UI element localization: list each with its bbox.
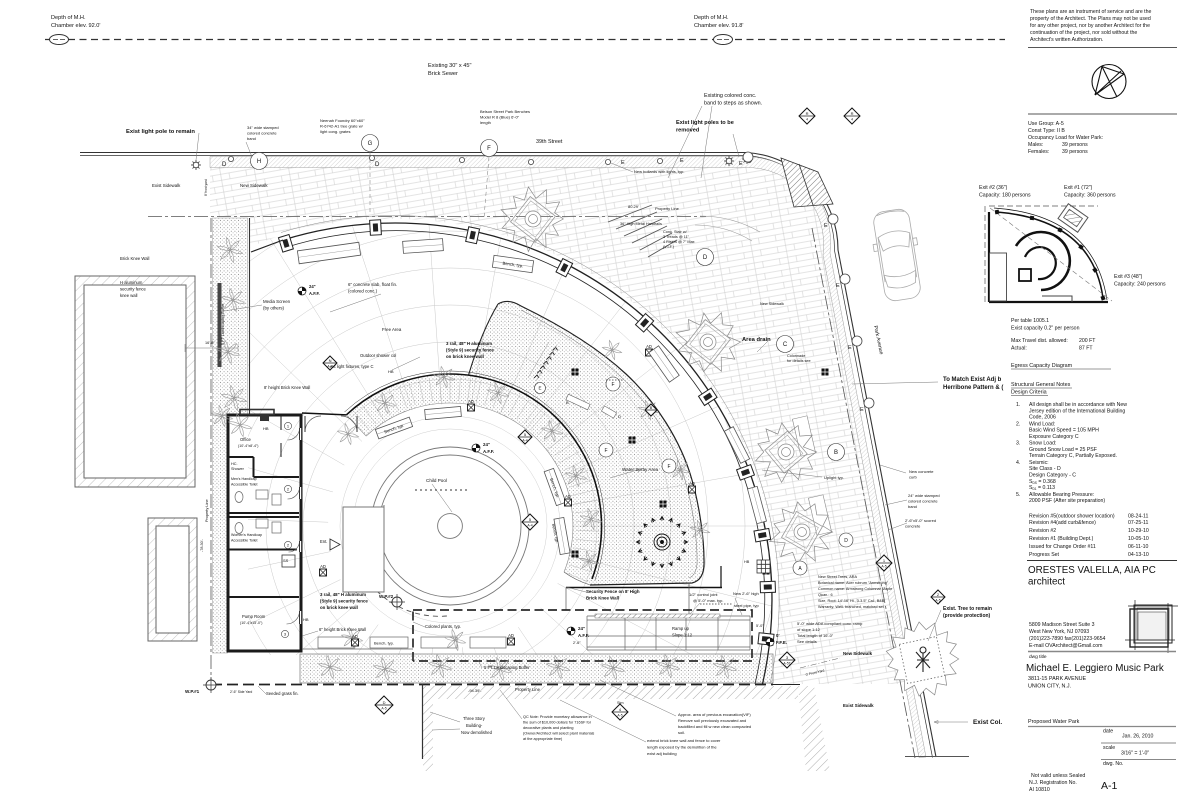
svg-text:dwg title: dwg title	[1029, 654, 1047, 660]
svg-text:2000 PSF (After site preparati: 2000 PSF (After site preparation)	[1029, 498, 1105, 504]
svg-text:(Style 9) security fence: (Style 9) security fence	[320, 599, 368, 604]
svg-text:E: E	[739, 161, 743, 167]
svg-text:SS: SS	[283, 558, 289, 563]
svg-text:E: E	[848, 345, 852, 351]
svg-text:A-4: A-4	[522, 439, 527, 443]
svg-text:QC Note: Provide monetary allo: QC Note: Provide monetary allowance in	[523, 715, 592, 719]
svg-text:Bench, typ.: Bench, typ.	[374, 641, 394, 646]
svg-text:Occupancy Load for Water Park:: Occupancy Load for Water Park:	[1028, 135, 1103, 141]
svg-text:24": 24"	[309, 284, 316, 289]
svg-text:To Match Exist Adj b: To Match Exist Adj b	[943, 377, 1002, 383]
svg-text:Females:: Females:	[1028, 149, 1049, 155]
svg-text:All design shall be in accorda: All design shall be in accordance with N…	[1029, 402, 1127, 408]
svg-text:Per table 1005.1: Per table 1005.1	[1011, 318, 1049, 324]
svg-text:Allowable Bearing Pressure:: Allowable Bearing Pressure:	[1029, 492, 1094, 498]
svg-text:2'-6": 2'-6"	[573, 641, 581, 645]
svg-text:These plans are an instrument: These plans are an instrument of service…	[1030, 9, 1152, 15]
svg-text:steel pipe, typ: steel pipe, typ	[734, 603, 759, 608]
svg-text:Exit #2 (36"): Exit #2 (36")	[979, 185, 1008, 191]
svg-text:04-13-10: 04-13-10	[1128, 552, 1149, 558]
svg-text:Design Category - C: Design Category - C	[1029, 473, 1076, 479]
svg-text:-78.30'-: -78.30'-	[200, 539, 204, 552]
svg-text:(Style 9) security fence: (Style 9) security fence	[446, 348, 494, 353]
svg-text:Exist Col.: Exist Col.	[973, 719, 1002, 726]
svg-text:length: length	[480, 120, 491, 125]
svg-text:Brick Sewer: Brick Sewer	[428, 71, 458, 77]
svg-text:removed: removed	[676, 128, 700, 134]
svg-text:36" High Metal Handrails: 36" High Metal Handrails	[620, 222, 662, 226]
svg-text:6" height Brick Knee Wall: 6" height Brick Knee Wall	[319, 627, 366, 632]
svg-text:Accessible Toilet: Accessible Toilet	[231, 483, 258, 487]
svg-text:soil.: soil.	[678, 730, 685, 735]
svg-text:Exist light pole to remain: Exist light pole to remain	[126, 129, 195, 135]
svg-text:Males:: Males:	[1028, 142, 1043, 148]
svg-text:HB: HB	[388, 369, 394, 374]
svg-text:8' height Brick Knee Wall: 8' height Brick Knee Wall	[264, 385, 310, 390]
svg-text:Warranty: Well- branched, matc: Warranty: Well- branched, matched set	[818, 605, 885, 609]
svg-text:5'-0": 5'-0"	[756, 624, 764, 628]
svg-text:5'-0" wide ADA compliant conc.: 5'-0" wide ADA compliant conc. ramp	[797, 621, 863, 626]
svg-text:F: F	[667, 464, 670, 470]
svg-text:(201)223-7890 fax(201)223-9654: (201)223-7890 fax(201)223-9654	[1029, 636, 1106, 642]
svg-text:curb: curb	[909, 475, 918, 480]
svg-text:exist adj building: exist adj building	[647, 751, 677, 756]
svg-text:R: R	[806, 111, 809, 116]
svg-text:87 FT: 87 FT	[1079, 346, 1093, 352]
svg-text:Use Group: A-5: Use Group: A-5	[1028, 121, 1064, 127]
svg-text:Property Line: Property Line	[515, 687, 541, 692]
svg-text:B: B	[650, 405, 653, 410]
svg-text:date: date	[1103, 729, 1113, 735]
svg-text:Security Fence on 8' High: Security Fence on 8' High	[586, 589, 640, 594]
svg-text:A-4: A-4	[527, 524, 532, 528]
svg-text:Free Area: Free Area	[382, 327, 402, 332]
svg-text:Jersey edition of the Internat: Jersey edition of the International Buil…	[1029, 408, 1125, 414]
svg-text:A-5: A-5	[381, 707, 386, 711]
svg-text:scale: scale	[1103, 745, 1115, 751]
svg-text:Egress Capacity Diagram: Egress Capacity Diagram	[1011, 363, 1073, 369]
svg-text:Exist. Tree to remain: Exist. Tree to remain	[943, 606, 992, 612]
svg-text:F: F	[487, 146, 491, 152]
svg-text:Wind Load:: Wind Load:	[1029, 421, 1055, 427]
svg-text:24" wide stamped: 24" wide stamped	[908, 493, 940, 498]
svg-text:Design Criteria: Design Criteria	[1011, 390, 1047, 396]
svg-text:(V.I.F.): (V.I.F.)	[663, 245, 675, 249]
svg-text:24": 24"	[578, 626, 585, 631]
svg-text:HB: HB	[303, 617, 309, 622]
svg-text:1.: 1.	[1016, 402, 1020, 408]
svg-text:H: H	[257, 159, 261, 165]
svg-text:ext light fixtures, type C: ext light fixtures, type C	[330, 364, 374, 369]
svg-text:Size, Root: 14'-16' Ht., 3-3.5: Size, Root: 14'-16' Ht., 3-3.5" Cal., B&…	[818, 599, 885, 603]
svg-text:10-05-10: 10-05-10	[1128, 536, 1149, 542]
svg-text:New bollards with lights, typ.: New bollards with lights, typ.	[634, 169, 684, 174]
svg-text:C: C	[783, 342, 788, 348]
svg-text:Three Story: Three Story	[463, 716, 486, 721]
svg-text:property of the Architect. The: property of the Architect. The Plans may…	[1030, 16, 1151, 22]
svg-text:3 rail, 48" H aluminum: 3 rail, 48" H aluminum	[320, 592, 366, 597]
svg-text:Herribone Pattern & (: Herribone Pattern & (	[943, 385, 1003, 391]
svg-text:Exist Sidewalk: Exist Sidewalk	[152, 183, 181, 188]
svg-text:F: F	[611, 382, 614, 388]
svg-text:AD: AD	[508, 633, 514, 638]
svg-text:D: D	[222, 162, 227, 168]
svg-text:continuation of the project, n: continuation of the project, nor sold wi…	[1030, 30, 1137, 36]
svg-text:34" wide stamped: 34" wide stamped	[247, 125, 279, 130]
svg-text:Exposure Category C: Exposure Category C	[1029, 434, 1079, 440]
svg-text:E: E	[824, 223, 828, 229]
svg-text:AD: AD	[320, 564, 326, 569]
svg-text:Ramp up: Ramp up	[672, 626, 690, 631]
svg-text:Capacity: 180 persons: Capacity: 180 persons	[979, 193, 1031, 199]
svg-text:HC.: HC.	[231, 462, 238, 466]
svg-text:E: E	[621, 160, 625, 166]
svg-text:knee wall: knee wall	[120, 293, 138, 298]
svg-text:Slope 1:12: Slope 1:12	[672, 633, 693, 638]
svg-text:39 persons: 39 persons	[1062, 142, 1088, 148]
svg-text:R-6742-A1 tree grate w/: R-6742-A1 tree grate w/	[320, 124, 364, 129]
svg-text:2'-6" Side Yard: 2'-6" Side Yard	[230, 690, 252, 694]
svg-text:N: N	[329, 358, 332, 363]
svg-text:Snow Load:: Snow Load:	[1029, 441, 1056, 447]
svg-text:(Owner/Architect will select: (Owner/Architect will select plant mater…	[523, 732, 594, 736]
svg-text:band: band	[908, 504, 917, 509]
svg-text:Exist capacity 0.2" per person: Exist capacity 0.2" per person	[1011, 326, 1080, 332]
svg-text:Depth of M.H.: Depth of M.H.	[51, 15, 86, 21]
svg-text:Depth of M.H.: Depth of M.H.	[694, 15, 729, 21]
svg-text:Neenah Foundry 60"x60": Neenah Foundry 60"x60"	[320, 118, 365, 123]
svg-text:A-5: A-5	[935, 599, 940, 603]
svg-text:AD: AD	[646, 344, 652, 349]
svg-text:Common name: Armstrong Columna: Common name: Armstrong Columnar Maple	[818, 587, 892, 591]
svg-text:3 rail, 48" H aluminum: 3 rail, 48" H aluminum	[446, 341, 492, 346]
svg-text:A.F.F.: A.F.F.	[483, 449, 494, 454]
svg-text:3/16" = 1'-0": 3/16" = 1'-0"	[1121, 751, 1149, 757]
svg-text:band: band	[247, 136, 256, 141]
svg-text:Structural General Notes: Structural General Notes	[1011, 382, 1071, 388]
svg-text:4: 4	[851, 118, 853, 122]
svg-text:Brick Knee Wall: Brick Knee Wall	[586, 596, 619, 601]
svg-text:2'-6"x5'-0" scored: 2'-6"x5'-0" scored	[905, 518, 936, 523]
svg-text:Conc. Stair w/: Conc. Stair w/	[663, 230, 688, 234]
svg-text:3811-15 PARK AVENUE: 3811-15 PARK AVENUE	[1028, 676, 1087, 682]
svg-text:Approx. area of previous excav: Approx. area of previous excavation(VIF)	[678, 712, 751, 717]
svg-text:W.P.#1: W.P.#1	[185, 689, 200, 694]
svg-text:Remove soil previously excavat: Remove soil previously excavated and	[678, 718, 746, 723]
svg-text:-94.39'-: -94.39'-	[468, 688, 482, 693]
svg-text:(colored conc.): (colored conc.)	[348, 289, 378, 294]
svg-text:A.F.F.: A.F.F.	[578, 633, 589, 638]
svg-text:(10'-4"x8'-4"): (10'-4"x8'-4")	[238, 444, 259, 448]
svg-text:Seismic:: Seismic:	[1029, 460, 1049, 466]
svg-text:Existing colored conc.: Existing colored conc.	[704, 93, 756, 99]
svg-text:Media Screen: Media Screen	[263, 299, 291, 304]
svg-text:Child Pool: Child Pool	[426, 478, 447, 483]
svg-text:New 2'-6" high: New 2'-6" high	[733, 591, 759, 596]
svg-text:Men's Handicap: Men's Handicap	[231, 477, 257, 481]
svg-text:(10'-4"x15'-0"): (10'-4"x15'-0")	[240, 621, 263, 625]
svg-text:2.: 2.	[1016, 421, 1020, 427]
svg-text:A-5T: A-5T	[783, 662, 790, 666]
svg-text:Quan.: 6: Quan.: 6	[818, 593, 833, 597]
svg-text:Revision #2: Revision #2	[1029, 528, 1056, 534]
svg-text:Basic Wind Speed = 105 MPH: Basic Wind Speed = 105 MPH	[1029, 428, 1099, 434]
svg-text:D: D	[375, 162, 380, 168]
svg-text:Property Line: Property Line	[655, 206, 680, 211]
svg-text:Terrain Category C, Partially: Terrain Category C, Partially Exposed.	[1029, 453, 1117, 459]
svg-text:Outdoor shower col: Outdoor shower col	[360, 353, 396, 358]
svg-text:Uplight typ.: Uplight typ.	[824, 475, 844, 480]
svg-text:E-mail OVArchitect@Gmail.com: E-mail OVArchitect@Gmail.com	[1029, 643, 1102, 649]
svg-text:Michael E. Leggiero Music Park: Michael E. Leggiero Music Park	[1026, 663, 1164, 674]
svg-text:4: 4	[806, 118, 808, 122]
svg-text:24": 24"	[483, 442, 490, 447]
svg-text:the sum of $10,000 dollars for: the sum of $10,000 dollars for 716SF for	[523, 721, 592, 725]
svg-text:Exit #1 (72"): Exit #1 (72")	[1064, 185, 1093, 191]
svg-text:Capacity: 240 persons: Capacity: 240 persons	[1114, 282, 1166, 288]
svg-text:(by others): (by others)	[263, 306, 285, 311]
svg-text:Capacity: 360 persons: Capacity: 360 persons	[1064, 193, 1116, 199]
svg-text:Exist light poles to be: Exist light poles to be	[676, 120, 734, 126]
svg-text:W.P.#2: W.P.#2	[379, 594, 394, 599]
svg-text:E: E	[680, 158, 684, 164]
svg-text:Now demolished: Now demolished	[461, 730, 493, 735]
svg-text:E: E	[538, 386, 541, 391]
svg-text:39 persons: 39 persons	[1062, 149, 1088, 155]
svg-text:decorative plants and planting: decorative plants and planting	[523, 726, 573, 730]
svg-text:Colonnade: Colonnade	[787, 354, 805, 358]
svg-text:on brick knee wall: on brick knee wall	[320, 605, 358, 610]
svg-text:Office: Office	[240, 437, 252, 442]
svg-text:Model R 8 (Blue) 6'-0": Model R 8 (Blue) 6'-0"	[480, 115, 520, 120]
svg-text:Chamber elev. 91.8': Chamber elev. 91.8'	[694, 23, 743, 29]
svg-text:for any other project, nor by: for any other project, nor by another Ar…	[1030, 23, 1150, 29]
svg-text:extend brick knee wall and fen: extend brick knee wall and fence to cove…	[647, 738, 721, 743]
svg-text:Water Spray Area: Water Spray Area	[622, 467, 659, 472]
svg-text:ORESTES VALELLA, AIA PC: ORESTES VALELLA, AIA PC	[1028, 565, 1156, 576]
svg-text:H aluminum: H aluminum	[120, 280, 143, 285]
svg-text:39th Street: 39th Street	[536, 139, 563, 145]
svg-text:UNION CITY, N.J.: UNION CITY, N.J.	[1028, 684, 1071, 690]
svg-text:Women's Handicap: Women's Handicap	[231, 533, 262, 537]
svg-text:10-29-10: 10-29-10	[1128, 528, 1149, 534]
svg-text:at the appropriate time): at the appropriate time)	[523, 737, 563, 741]
svg-text:Seeded grass fin.: Seeded grass fin.	[266, 691, 299, 696]
svg-text:0': 0'	[776, 633, 780, 638]
svg-text:Progress Set: Progress Set	[1029, 552, 1060, 558]
svg-text:Shower: Shower	[231, 467, 245, 471]
svg-text:D: D	[703, 255, 708, 261]
svg-text:5.: 5.	[1016, 492, 1020, 498]
svg-text:New Sidewalk: New Sidewalk	[843, 651, 873, 656]
svg-text:08-24-11: 08-24-11	[1128, 514, 1148, 520]
svg-text:D: D	[844, 538, 848, 544]
svg-text:Not valid unless Sealed: Not valid unless Sealed	[1031, 773, 1085, 779]
svg-text:D: D	[618, 414, 621, 419]
svg-text:E: E	[836, 283, 840, 289]
svg-text:A-1: A-1	[1101, 780, 1118, 792]
svg-text:80.29': 80.29'	[628, 204, 639, 209]
svg-text:band to steps as shown.: band to steps as shown.	[704, 101, 762, 107]
svg-text:HB: HB	[263, 426, 269, 431]
svg-text:Belson Street Park Benches: Belson Street Park Benches	[480, 109, 530, 114]
svg-text:@ 5'-0" max. typ.: @ 5'-0" max. typ.	[693, 598, 723, 603]
svg-text:Exist Sidewalk: Exist Sidewalk	[843, 703, 874, 708]
svg-text:Jan. 26, 2010: Jan. 26, 2010	[1122, 734, 1154, 740]
svg-text:of slope 1:12: of slope 1:12	[797, 627, 821, 632]
svg-text:See details: See details	[797, 639, 817, 644]
svg-text:3.: 3.	[1016, 441, 1020, 447]
svg-text:Proposed Water Park: Proposed Water Park	[1028, 719, 1080, 725]
svg-text:(provide protection): (provide protection)	[943, 613, 991, 619]
svg-text:R: R	[851, 111, 854, 116]
svg-text:B: B	[566, 400, 569, 405]
svg-text:Revision #5(outdoor shower loc: Revision #5(outdoor shower location)	[1029, 514, 1115, 520]
svg-text:Actual:: Actual:	[1011, 346, 1027, 352]
svg-text:Exit #3 (48"): Exit #3 (48")	[1114, 274, 1143, 280]
svg-text:colored concrete: colored concrete	[908, 499, 938, 504]
svg-text:G: G	[368, 141, 373, 147]
svg-text:New Street Trees, ARA: New Street Trees, ARA	[818, 575, 858, 579]
svg-text:colored concrete: colored concrete	[247, 131, 277, 136]
svg-text:B: B	[834, 450, 838, 456]
svg-text:light cong. grates: light cong. grates	[320, 129, 350, 134]
svg-text:New Sidewalk: New Sidewalk	[240, 183, 268, 188]
svg-text:6" concrete slab, float fin.: 6" concrete slab, float fin.	[348, 282, 397, 287]
svg-text:Area drain: Area drain	[742, 337, 771, 343]
svg-text:Botanical name: Acer rubrum "A: Botanical name: Acer rubrum "Armstrong"	[818, 581, 889, 585]
svg-text:A-5: A-5	[881, 565, 886, 569]
svg-text:New Sidewalk: New Sidewalk	[760, 302, 784, 306]
svg-text:backfilled and fill w new clea: backfilled and fill w new clean compacte…	[678, 724, 751, 729]
svg-text:Existing 30" x 45": Existing 30" x 45"	[428, 63, 471, 69]
svg-text:Architect's written Authorizat: Architect's written Authorization.	[1030, 37, 1103, 43]
svg-text:5 FT Landscaping Buffer: 5 FT Landscaping Buffer	[484, 665, 530, 670]
svg-text:Property Line: Property Line	[205, 499, 209, 522]
svg-text:Sim: Sim	[617, 701, 624, 705]
svg-text:for details see: for details see	[787, 359, 811, 363]
svg-text:HB: HB	[744, 560, 750, 564]
svg-text:A-5: A-5	[617, 714, 622, 718]
svg-text:Max Travel dist. allowed:: Max Travel dist. allowed:	[1011, 338, 1068, 344]
svg-text:architect: architect	[1028, 577, 1065, 588]
svg-text:AD: AD	[565, 494, 571, 499]
svg-text:Issued for Change Order #11: Issued for Change Order #11	[1029, 544, 1096, 550]
svg-text:1/2" control joint: 1/2" control joint	[689, 592, 718, 597]
svg-text:4 Risers @ 7" Max: 4 Risers @ 7" Max	[663, 240, 695, 244]
svg-text:F.F.E.: F.F.E.	[776, 640, 787, 645]
svg-text:Site Class - D: Site Class - D	[1029, 466, 1061, 472]
svg-text:F: F	[604, 448, 607, 454]
svg-text:Revision #4(add curb&fence): Revision #4(add curb&fence)	[1029, 520, 1096, 526]
svg-text:Ground Snow Load = 25 PSF: Ground Snow Load = 25 PSF	[1029, 447, 1097, 453]
svg-text:E: E	[860, 407, 864, 413]
svg-text:Accessible Toilet: Accessible Toilet	[231, 539, 258, 543]
svg-text:West New York, NJ 07093: West New York, NJ 07093	[1029, 629, 1089, 635]
svg-text:AD: AD	[468, 399, 474, 404]
svg-text:Chamber elev. 92.0': Chamber elev. 92.0'	[51, 23, 100, 29]
svg-text:A.F.F.: A.F.F.	[309, 291, 320, 296]
svg-text:5 FT Landscaping Buffer: 5 FT Landscaping Buffer	[221, 303, 225, 345]
svg-text:Colored plants, typ.: Colored plants, typ.	[425, 624, 461, 629]
svg-text:concrete: concrete	[905, 524, 921, 529]
svg-text:dwg. No.: dwg. No.	[1103, 761, 1123, 767]
svg-text:8' front yard: 8' front yard	[204, 179, 208, 196]
svg-text:Building-: Building-	[466, 723, 483, 728]
svg-text:4.: 4.	[1016, 460, 1020, 466]
svg-text:Total length of 16'-0": Total length of 16'-0"	[797, 633, 834, 638]
svg-text:AI 10810: AI 10810	[1029, 787, 1050, 793]
svg-text:AD: AD	[352, 634, 358, 639]
svg-text:on brick knee wall: on brick knee wall	[446, 354, 484, 359]
svg-text:5809 Madison Street Suite 3: 5809 Madison Street Suite 3	[1029, 622, 1095, 628]
svg-text:N.J. Registration No.: N.J. Registration No.	[1029, 780, 1077, 786]
svg-text:Const Type: II B: Const Type: II B	[1028, 128, 1065, 134]
svg-text:Brick Knee Wall: Brick Knee Wall	[120, 256, 149, 261]
svg-text:AD: AD	[689, 481, 695, 486]
svg-text:length exposed by the demoliti: length exposed by the demolition of the	[647, 745, 717, 750]
svg-text:security fence: security fence	[120, 287, 147, 292]
svg-text:16'-8": 16'-8"	[205, 341, 215, 345]
svg-text:Revision #1 (Building Dept.): Revision #1 (Building Dept.)	[1029, 536, 1094, 542]
svg-text:Pump Room: Pump Room	[242, 614, 266, 619]
svg-text:D: D	[383, 700, 386, 705]
svg-text:06-11-10: 06-11-10	[1128, 544, 1148, 550]
svg-text:New concrete: New concrete	[909, 469, 934, 474]
svg-text:07-25-11: 07-25-11	[1128, 520, 1148, 526]
svg-text:3 Treads @ 11": 3 Treads @ 11"	[663, 235, 690, 239]
svg-text:Ent.: Ent.	[320, 539, 327, 544]
svg-text:Code, 2006: Code, 2006	[1029, 415, 1056, 421]
svg-text:200 FT: 200 FT	[1079, 338, 1096, 344]
